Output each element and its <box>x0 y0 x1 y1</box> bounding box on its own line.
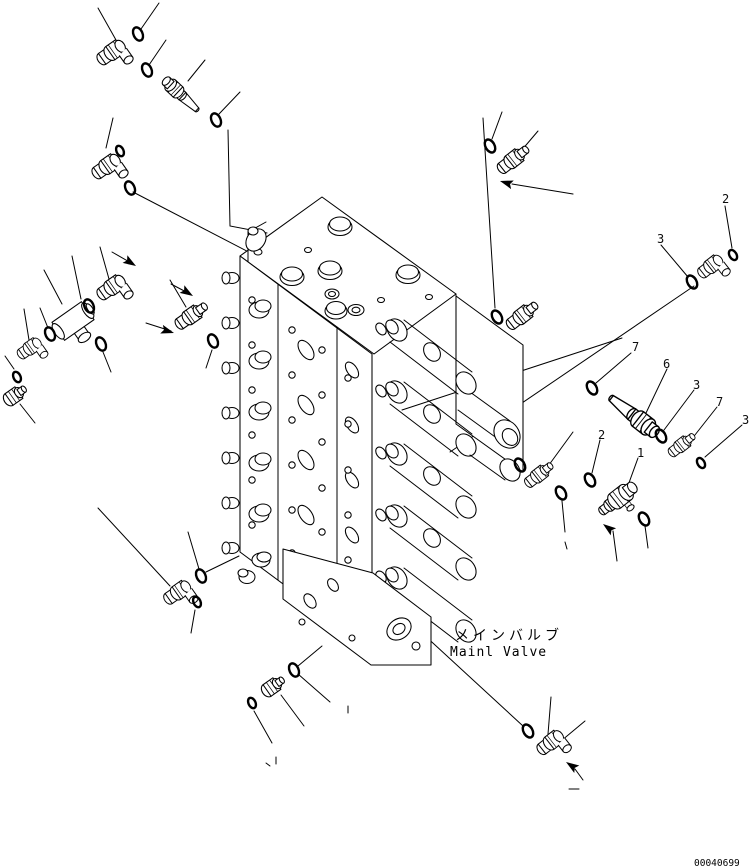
o-ring <box>192 596 203 609</box>
parts-diagram-page: メインバルブ Mainl Valve 00040699 237637321 <box>0 0 749 868</box>
main-valve-block <box>222 197 525 665</box>
stem-plug <box>604 390 663 442</box>
o-ring <box>12 371 23 384</box>
o-ring <box>209 112 223 128</box>
fitting-elbow <box>15 335 50 369</box>
o-ring <box>140 62 154 78</box>
callout-number: 3 <box>657 232 664 246</box>
hex-plug <box>259 673 288 699</box>
callout-number: 7 <box>632 340 639 354</box>
hex-plug <box>1 382 30 408</box>
valve-left-edge-plugs <box>222 272 239 554</box>
flow-arrow <box>180 285 196 300</box>
callout-number: 7 <box>716 395 723 409</box>
o-ring <box>554 485 569 502</box>
valve-label-en: Mainl Valve <box>450 645 547 660</box>
o-ring <box>583 472 598 489</box>
flow-arrow <box>160 325 175 337</box>
callout-number: 1 <box>637 446 644 460</box>
callout-number: 2 <box>722 192 729 206</box>
leader-lines <box>5 3 742 789</box>
main-valve-parts-diagram: メインバルブ Mainl Valve 00040699 237637321 <box>0 0 749 868</box>
o-ring <box>521 723 536 740</box>
fitting-straight <box>172 299 211 332</box>
o-ring <box>194 568 208 584</box>
o-ring <box>695 456 707 469</box>
drawing-number: 00040699 <box>694 858 740 868</box>
o-ring <box>287 662 301 678</box>
callout-number: 2 <box>598 428 605 442</box>
fitting-straight <box>494 142 532 176</box>
fitting-elbow <box>94 37 135 77</box>
callout-number: 6 <box>663 357 670 371</box>
valve-label-ja: メインバルブ <box>455 627 563 644</box>
o-ring <box>247 697 258 710</box>
flow-arrow <box>563 758 579 773</box>
o-ring <box>637 511 652 528</box>
labels: メインバルブ Mainl Valve 00040699 <box>450 627 740 868</box>
o-ring <box>727 248 739 261</box>
o-ring <box>123 180 137 196</box>
callout-number: 3 <box>693 378 700 392</box>
o-ring <box>685 274 700 291</box>
stem-plug <box>159 74 203 116</box>
o-ring <box>206 333 220 349</box>
o-ring <box>654 428 669 445</box>
fitting-straight <box>503 298 541 332</box>
o-ring <box>94 336 108 352</box>
part-callouts: 237637321 <box>598 192 749 460</box>
o-ring <box>131 26 145 42</box>
flow-arrow <box>123 255 139 270</box>
fitting-straight <box>666 430 698 459</box>
callout-number: 3 <box>742 413 749 427</box>
fitting-elbow <box>695 252 732 289</box>
flow-arrow <box>499 177 514 189</box>
fitting-straight <box>522 459 556 490</box>
fitting-elbow <box>94 272 135 312</box>
fitting-elbow <box>534 728 573 767</box>
